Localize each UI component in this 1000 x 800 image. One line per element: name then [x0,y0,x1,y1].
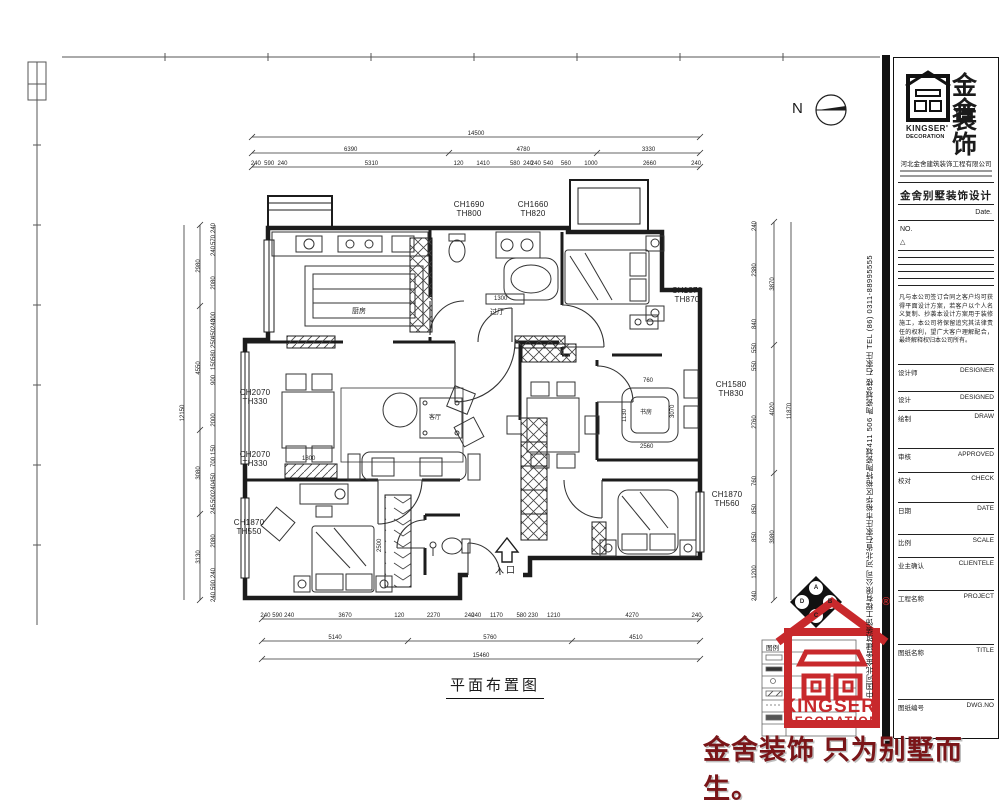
row-cn: 业主确认 [898,560,924,570]
row-dwgno: 图纸编号DWG.NO [898,699,994,712]
dim-value: 150 [211,445,217,455]
door-openings [343,297,612,578]
entrance-label: 入口 [495,563,517,576]
room-label-ch1870-tr: CH1870 TH870 [664,286,710,304]
dim-value: 240 [260,613,270,619]
room-name-living: 客厅 [429,412,441,421]
windows [241,240,704,578]
dim-value: 120 [454,161,464,167]
row-en: DESIGNER [960,367,994,377]
row-cn: 绘制 [898,413,911,423]
dim-value: 150 [211,360,217,370]
revision-line [898,278,994,279]
room-name-hall: 过厅 [490,307,504,317]
dim-value: 550 [752,361,758,371]
room-label-ch1580: CH1580 TH830 [708,380,754,398]
dim-value: 230 [528,613,538,619]
drawing-sheet: CH1690 TH800 CH1660 TH820 CH1870 TH870 C… [0,0,1000,800]
room-label-ch1870-br: CH1870 TH560 [704,490,750,508]
revision-line [898,271,994,272]
dim-value: 4550 [196,362,202,375]
dim-value: 580 [211,350,217,360]
dim-value: 2380 [752,263,758,276]
dim-value: 240 [692,613,702,619]
company-name: 河北金舍建筑装饰工程有限公司 [897,158,995,168]
logo-letter-d: D [800,599,804,605]
dim-value: 580 [516,613,526,619]
dim-value: 5140 [328,635,341,641]
inline-dim-1300: 1300 [494,296,507,302]
logo-letter-c: C [814,613,818,619]
row-designer: 设计师DESIGNER [898,364,994,377]
registered-mark: ® [882,596,890,608]
row-date: 日期DATE [898,502,994,515]
revision-line [898,250,994,251]
revision-line [898,257,994,258]
furniture [261,232,698,592]
room-label-ch2070-a: CH2070 TH330 [232,388,278,406]
dim-value: 4020 [770,403,776,416]
dim-value: 120 [394,613,404,619]
dim-value: 6390 [344,147,357,153]
row-cn: 校对 [898,475,911,485]
dim-value: 240 [284,613,294,619]
row-cn: 工程名称 [898,593,924,603]
row-scale: 比例SCALE [898,534,994,547]
fine-print-line [900,175,992,177]
dim-value: 3130 [196,551,202,564]
dim-value: 240 [691,161,701,167]
inline-dim-2560: 2560 [640,444,653,450]
dim-value: 240 [531,161,541,167]
dim-value: 240 [752,591,758,601]
room-name-study: 书房 [640,407,652,416]
row-en: DATE [977,505,994,515]
row-en: DRAW [974,413,994,423]
row-en: DESIGNED [960,394,994,404]
entrance-arrow-icon [496,538,518,562]
dim-value: 840 [752,319,758,329]
logo-letter-b: B [828,599,832,605]
fine-print-line [900,170,992,172]
row-designed: 设计DESIGNED [898,391,994,404]
dim-value: 240 [471,613,481,619]
row-draw: 绘制DRAW [898,410,994,423]
dim-value: 560 [561,161,571,167]
inline-dim-3070: 3070 [670,405,676,418]
inline-dim-1130: 1130 [622,409,628,422]
dim-value: 4780 [517,147,530,153]
dim-value: 570 [211,235,217,245]
revision-line [898,285,994,286]
dim-value: 590 [264,161,274,167]
company-address-strip: 中国河北金舍建筑装饰工程有限公司 河北省石家庄市裕华区裕特陶瓷城411 506 … [864,62,875,698]
red-brand-decoration: DECORATION [772,714,892,728]
row-en: DWG.NO [967,702,994,712]
dim-value: 1000 [584,161,597,167]
dim-value: 15460 [473,653,490,659]
row-cn: 比例 [898,537,911,547]
plan-title: 平面布置图 [446,674,544,699]
brand-en-kingser: KINGSER' [906,124,948,133]
design-title: 金舍别墅装饰设计 [897,188,995,203]
divider [898,182,994,183]
dim-value: 850 [752,504,758,514]
dim-value: 550 [752,343,758,353]
dim-value: 240 [211,246,217,256]
dim-value: 245 [211,504,217,514]
row-project: 工程名称PROJECT [898,590,994,603]
row-en: PROJECT [964,593,994,603]
row-cn: 审核 [898,451,911,461]
inline-dim-1800: 1800 [302,456,315,462]
title-block: KINGSER' DECORATION 金舍 装饰 河北金舍建筑装饰工程有限公司… [893,57,999,739]
dim-value: 700 [211,457,217,467]
divider [898,204,994,205]
brand-cn-zhuangshi: 装饰 [952,108,998,158]
row-client: 业主确认CLIENTELE [898,557,994,570]
dim-value: 590 [272,613,282,619]
dim-value: 240 [211,568,217,578]
logo-letter-a: A [814,585,818,591]
dim-value: 1170 [490,613,503,619]
room-label-ch1870-bl: CH1870 TH550 [226,518,272,536]
row-title: 图纸名称TITLE [898,644,994,657]
dim-value: 14500 [468,131,485,137]
row-cn: 设计 [898,394,911,404]
legend-title: 图例 [766,642,779,652]
dim-value: 2760 [752,415,758,428]
dim-value: 1210 [547,613,560,619]
dim-value: 850 [752,532,758,542]
dim-value: 240 [211,223,217,233]
revision-line [898,264,994,265]
row-cn: 图纸编号 [898,702,924,712]
dim-value: 11870 [787,403,793,419]
dim-value: 3080 [196,466,202,479]
room-label-ch1690: CH1690 TH800 [446,200,492,218]
row-cn: 日期 [898,505,911,515]
dim-value: 2000 [211,414,217,427]
dim-value: 540 [543,161,553,167]
dim-value: 12150 [180,404,186,421]
dim-value: 2080 [211,277,217,290]
dim-value: 5760 [483,635,496,641]
plan-walls [245,180,700,598]
brand-en-decoration: DECORATION [906,134,945,140]
dim-value: 3980 [770,530,776,543]
row-en: APPROVED [958,451,994,461]
dim-value: 900 [211,375,217,385]
no-label: NO. [900,226,912,233]
footer-slogan: 金舍装饰 只为别墅而生。 [703,728,1000,800]
north-arrow-icon [816,95,846,125]
dim-value: 240 [251,161,261,167]
row-en: CLIENTELE [959,560,994,570]
dim-value: 240 [752,221,758,231]
dim-value: 2270 [427,613,440,619]
dim-value: 240 [277,161,287,167]
date-label: Date. [975,209,992,216]
row-en: TITLE [976,647,994,657]
revision-mark: △ [900,238,905,246]
dim-value: 760 [752,476,758,486]
dim-value: 500 [211,493,217,503]
room-label-ch1660: CH1660 TH820 [510,200,556,218]
inline-dim-760: 760 [643,378,653,384]
row-cn: 图纸名称 [898,647,924,657]
dim-value: 450 [211,473,217,483]
dim-value: 1410 [476,161,489,167]
dim-value: 240 [211,592,217,602]
dim-value: 3670 [338,613,351,619]
row-en: CHECK [971,475,994,485]
dim-value: 240 [211,483,217,493]
dim-value: 2980 [196,259,202,272]
dim-value: 4510 [629,635,642,641]
inline-dim-2500: 2500 [377,539,383,552]
dim-value: 580 [510,161,520,167]
dim-value: 4270 [625,613,638,619]
room-name-kitchen: 厨房 [352,306,366,316]
dim-value: 2080 [211,534,217,547]
dim-value: 3870 [770,277,776,290]
dim-value: 1200 [752,565,758,578]
row-en: SCALE [973,537,994,547]
dim-value: 590 [211,580,217,590]
row-check: 校对CHECK [898,472,994,485]
disclaimer-text: 凡与本公司签订合同之客户均可获得平面设计方案，若客户以个人名义复制、抄袭本设计方… [899,294,993,346]
row-cn: 设计师 [898,367,918,377]
dim-value: 250 [211,338,217,348]
dim-value: 2660 [643,161,656,167]
room-label-ch2070-b: CH2070 TH330 [232,450,278,468]
divider [898,220,994,221]
north-label: N [792,100,803,117]
row-approved: 审核APPROVED [898,448,994,461]
dim-value: 240 [211,319,217,329]
dim-value: 5310 [365,161,378,167]
dim-value: 3330 [642,147,655,153]
